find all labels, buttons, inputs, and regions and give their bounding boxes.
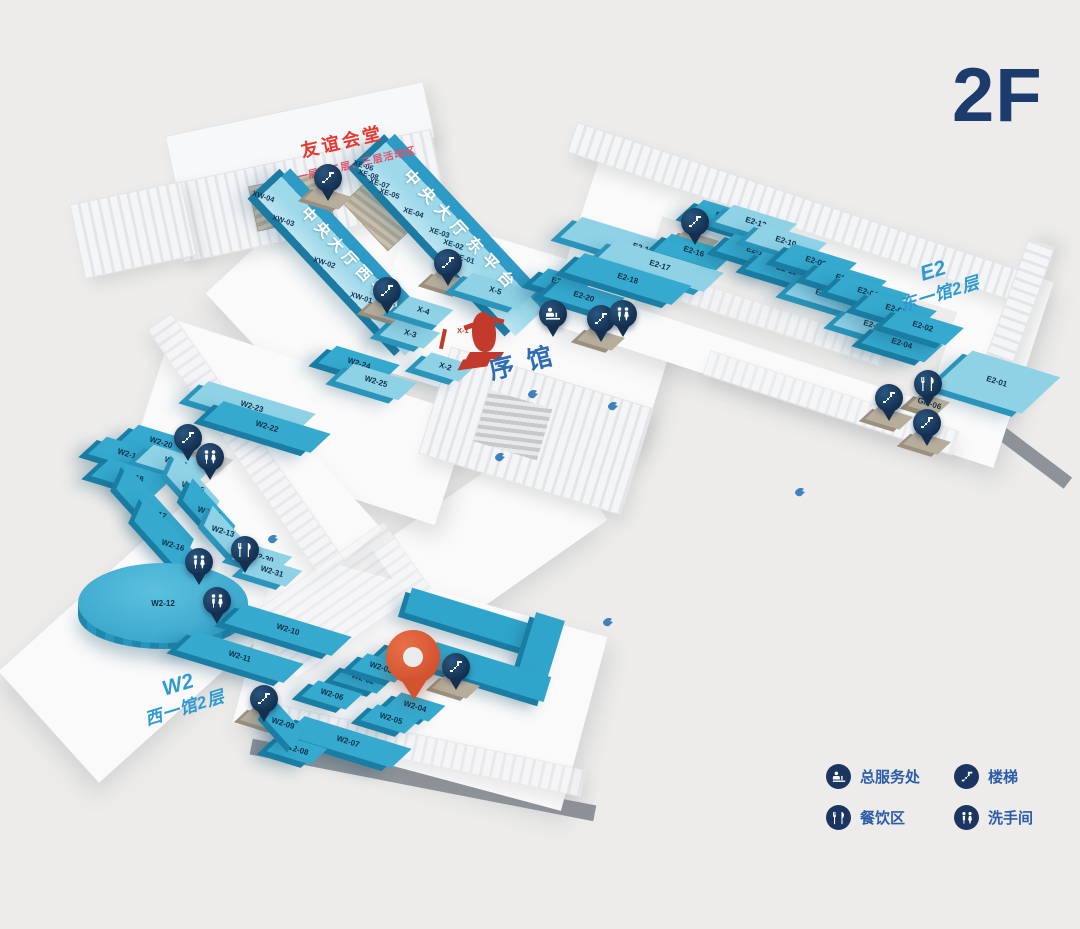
floor-marker-icon bbox=[601, 614, 615, 632]
booth-label: E2-02 bbox=[912, 320, 935, 334]
booth-label: E2-01 bbox=[986, 375, 1009, 389]
floor-marker-icon bbox=[493, 449, 507, 467]
legend-label: 楼梯 bbox=[988, 766, 1018, 787]
pin-tail bbox=[616, 325, 630, 344]
pin-tail bbox=[380, 302, 394, 321]
legend-item-stairs: 楼梯 bbox=[954, 764, 1033, 789]
pin-service-desk[interactable] bbox=[539, 300, 567, 342]
pin-tail bbox=[920, 434, 934, 453]
stairs-icon bbox=[954, 764, 979, 789]
dining-icon bbox=[826, 805, 851, 830]
stairs-icon bbox=[913, 409, 941, 437]
location-pin-tail bbox=[400, 678, 428, 714]
pin-restroom[interactable] bbox=[609, 300, 637, 342]
pin-restroom[interactable] bbox=[185, 548, 213, 590]
pin-stairs[interactable] bbox=[314, 164, 342, 206]
stairs-icon bbox=[681, 208, 709, 236]
pin-stairs[interactable] bbox=[875, 384, 903, 426]
booth-label: X-2 bbox=[438, 361, 452, 372]
stairs-icon bbox=[314, 164, 342, 192]
restroom-icon bbox=[609, 300, 637, 328]
floor-marker-icon bbox=[793, 484, 807, 502]
restroom-icon bbox=[954, 805, 979, 830]
friendship-hall-annex bbox=[69, 181, 196, 279]
legend-item-restroom: 洗手间 bbox=[954, 805, 1033, 830]
pin-tail bbox=[203, 468, 217, 487]
restroom-icon bbox=[203, 587, 231, 615]
pin-restroom[interactable] bbox=[196, 443, 224, 485]
floor-title: 2F bbox=[952, 52, 1043, 139]
pin-tail bbox=[546, 325, 560, 344]
stairs-icon bbox=[250, 685, 278, 713]
location-pin-head bbox=[386, 630, 440, 684]
pin-stairs[interactable] bbox=[434, 249, 462, 291]
current-location-pin[interactable] bbox=[386, 630, 442, 716]
booth-label: X-3 bbox=[403, 328, 417, 339]
booth-label: W2-12 bbox=[151, 599, 175, 608]
floor-marker-icon bbox=[526, 386, 540, 404]
stairs-icon bbox=[373, 277, 401, 305]
pin-tail bbox=[594, 330, 608, 349]
booth-label: W2-31 bbox=[260, 565, 285, 580]
service-desk-icon bbox=[826, 764, 851, 789]
floor-marker-icon bbox=[606, 398, 620, 416]
pin-tail bbox=[238, 561, 252, 580]
pin-dining[interactable] bbox=[231, 536, 259, 578]
booth-label: W2-16 bbox=[161, 539, 186, 554]
stairs-icon bbox=[442, 653, 470, 681]
legend-item-service-desk: 总服务处 bbox=[826, 764, 920, 789]
booth-label: E2-18 bbox=[617, 272, 640, 286]
booth-label-X-1: X-1 bbox=[457, 326, 469, 335]
booth-label: W2-11 bbox=[228, 650, 252, 664]
booth-label: E2-17 bbox=[649, 259, 672, 273]
pin-stairs[interactable] bbox=[442, 653, 470, 695]
pin-restroom[interactable] bbox=[203, 587, 231, 629]
restroom-icon bbox=[185, 548, 213, 576]
pin-tail bbox=[257, 710, 271, 729]
floor-marker-icon bbox=[266, 531, 280, 549]
legend: 总服务处楼梯餐饮区洗手间 bbox=[826, 764, 1033, 830]
stairs-icon bbox=[434, 249, 462, 277]
pin-tail bbox=[441, 274, 455, 293]
booth-label: W2-25 bbox=[364, 375, 389, 390]
pin-tail bbox=[210, 612, 224, 631]
legend-label: 餐饮区 bbox=[860, 807, 905, 828]
pin-tail bbox=[181, 449, 195, 468]
service-desk-icon bbox=[539, 300, 567, 328]
booth-label: X-4 bbox=[416, 305, 430, 316]
booth-label: W2-07 bbox=[336, 735, 361, 750]
restroom-icon bbox=[196, 443, 224, 471]
dining-icon bbox=[914, 370, 942, 398]
pin-tail bbox=[882, 409, 896, 428]
pin-dining[interactable] bbox=[914, 370, 942, 412]
booth-label: E2-04 bbox=[891, 337, 914, 351]
location-pin-hole bbox=[403, 647, 423, 667]
pin-tail bbox=[449, 678, 463, 697]
floor-map-canvas: 友谊会堂 一层、二层、三层活动区 中央大厅西平台 中央大厅东平台 序馆 E2 东… bbox=[0, 0, 1080, 929]
booth-label: E2-20 bbox=[573, 290, 596, 304]
legend-label: 总服务处 bbox=[860, 766, 920, 787]
stairs-icon bbox=[875, 384, 903, 412]
pin-stairs[interactable] bbox=[373, 277, 401, 319]
pin-tail bbox=[321, 189, 335, 208]
pin-tail bbox=[688, 233, 702, 252]
pin-stairs[interactable] bbox=[913, 409, 941, 451]
pin-stairs[interactable] bbox=[681, 208, 709, 250]
booth-label: W2-10 bbox=[276, 623, 301, 638]
legend-item-dining: 餐饮区 bbox=[826, 805, 920, 830]
booth-label: W2-22 bbox=[255, 420, 280, 435]
pin-stairs[interactable] bbox=[250, 685, 278, 727]
booth-label: W2-06 bbox=[320, 688, 345, 703]
legend-label: 洗手间 bbox=[988, 807, 1033, 828]
dining-icon bbox=[231, 536, 259, 564]
